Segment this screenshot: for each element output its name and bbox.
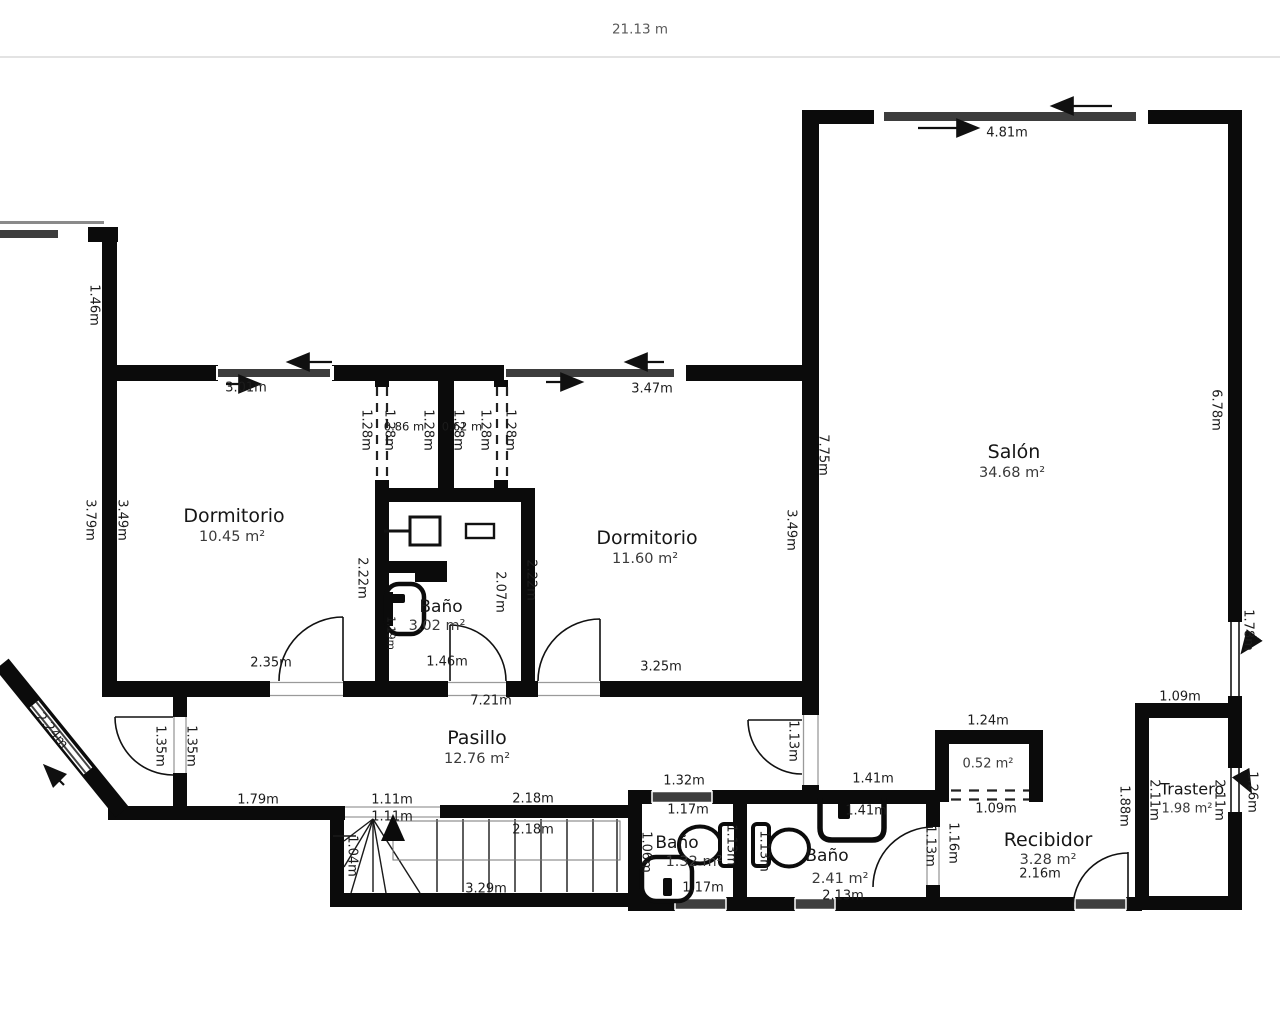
- dim-banio-small-bottom: 1.17m: [682, 882, 724, 895]
- dim-toilet: 1.19m: [385, 616, 396, 650]
- dim-trastero-left: 2.11m: [1148, 779, 1161, 821]
- dim-dorm2-window: 3.47m: [631, 383, 673, 396]
- dim-closet-opening: 1.09m: [975, 803, 1017, 816]
- dim-dorm1-left-int: 3.49m: [116, 499, 129, 541]
- dim-dorm2-right: 3.49m: [785, 509, 798, 551]
- dim-stairs-landing: 2.18m: [512, 824, 554, 837]
- dim-toilet-wall: 1.13m: [758, 830, 771, 872]
- dim-bath-left: 2.22m: [356, 557, 369, 599]
- dim-salon-window: 4.81m: [986, 127, 1028, 140]
- shelf-icon: [466, 524, 494, 538]
- scale-rule: [0, 56, 1280, 58]
- room-area-banio-small: 1.32 m²: [666, 854, 723, 870]
- room-name-banio-bottom: Baño: [805, 846, 848, 866]
- dim-trastero-right: 2.11m: [1213, 779, 1226, 821]
- dim-sink-niche: 1.41m: [845, 805, 887, 818]
- faucet-icon: [663, 878, 672, 896]
- dim-stairs-left: 1.04m: [346, 835, 359, 877]
- dim-recibidor-right: 1.88m: [1118, 785, 1131, 827]
- dim-recibidor-left: 1.16m: [947, 822, 960, 864]
- room-area-armario: 0.52 m²: [963, 757, 1014, 772]
- washbasin-icon: [410, 517, 440, 545]
- room-area-banio-top: 3.02 m²: [409, 618, 466, 634]
- room-name-recibidor: Recibidor: [1004, 829, 1093, 851]
- dim-pasillo-width: 7.21m: [470, 695, 512, 708]
- dim-banio-small-door: 1.32m: [663, 775, 705, 788]
- dim-stairs-top: 2.18m: [512, 793, 554, 806]
- dim-opening-width: 0.62 m: [442, 421, 482, 433]
- dim-banio-bottom-width: 2.13m: [822, 890, 864, 903]
- room-name-dormitorio1: Dormitorio: [183, 505, 284, 527]
- dim-salon-right: 6.78m: [1210, 389, 1223, 431]
- dim-left-wall: 1.46m: [88, 284, 101, 326]
- room-area-banio-bottom: 2.41 m²: [812, 871, 869, 887]
- dim-dorm1-bottom: 2.35m: [250, 657, 292, 670]
- dim-banio-small-top: 1.17m: [667, 804, 709, 817]
- floorplan-page: 21.13 m 4.81m 1.46m 3.01m 3.47m 1.28m 1.…: [0, 0, 1280, 1024]
- dim-recibidor-bottom: 2.16m: [1019, 868, 1061, 881]
- dim-right-window: 1.78m: [1242, 609, 1255, 651]
- dim-pasillo-bottom: 1.79m: [237, 794, 279, 807]
- room-area-dormitorio1: 10.45 m²: [199, 529, 265, 545]
- dim-bath-inner: 2.07m: [494, 571, 507, 613]
- dim-stairs-entry: 1.11m: [371, 811, 413, 824]
- dim-salon-left: 7.75m: [817, 434, 830, 476]
- dim-dorm1-window: 3.01m: [225, 382, 267, 395]
- dim-toilet-wall: 1.13m: [725, 824, 738, 866]
- dim-left-door: 1.35m: [185, 725, 198, 767]
- room-area-pasillo: 12.76 m²: [444, 751, 510, 767]
- dim-left-door: 1.35m: [154, 725, 167, 767]
- room-area-salon: 34.68 m²: [979, 465, 1045, 481]
- dim-opening: 1.28m: [504, 409, 517, 451]
- room-name-banio-small: Baño: [655, 833, 698, 853]
- dim-trastero-top: 1.09m: [1159, 691, 1201, 704]
- dim-dorm2-bottom: 3.25m: [640, 661, 682, 674]
- dim-recibidor-door: 1.13m: [924, 825, 937, 867]
- dim-opening: 1.28m: [360, 409, 373, 451]
- scale-total-width: 21.13 m: [612, 23, 668, 37]
- dim-dorm1-left-ext: 3.79m: [84, 499, 97, 541]
- dim-bath-door: 1.46m: [426, 656, 468, 669]
- dim-trastero-window: 1.26m: [1246, 771, 1259, 813]
- room-name-dormitorio2: Dormitorio: [596, 527, 697, 549]
- dim-closet-top: 1.24m: [967, 715, 1009, 728]
- dim-opening-width: 0.86 m: [384, 421, 424, 433]
- dim-stairs-entry: 1.11m: [371, 794, 413, 807]
- dim-banio-small-left: 1.06m: [640, 831, 653, 873]
- room-name-salon: Salón: [988, 441, 1041, 463]
- room-area-trastero: 1.98 m²: [1162, 802, 1213, 817]
- dim-bath-right: 2.22m: [525, 559, 538, 601]
- room-name-banio-top: Baño: [419, 597, 462, 617]
- dim-banio-bottom-top: 1.41m: [852, 773, 894, 786]
- dim-pasillo-door: 1.13m: [787, 720, 800, 762]
- room-name-pasillo: Pasillo: [447, 727, 507, 749]
- room-area-dormitorio2: 11.60 m²: [612, 551, 678, 567]
- dim-stairs-length: 3.29m: [465, 883, 507, 896]
